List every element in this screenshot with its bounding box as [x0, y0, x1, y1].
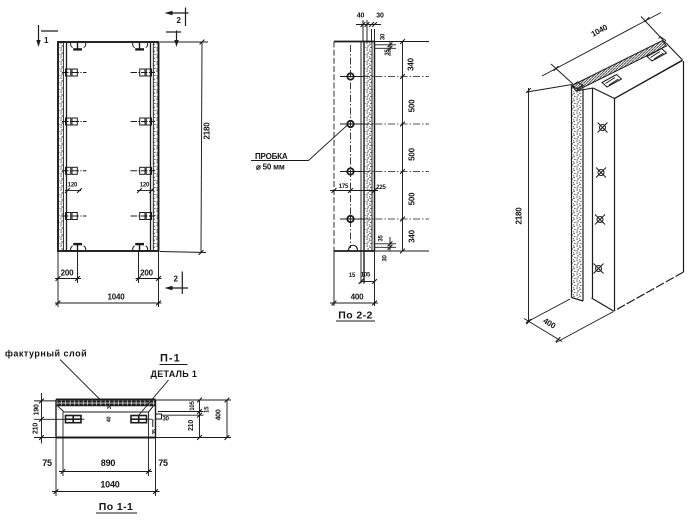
svg-text:210: 210 — [188, 420, 195, 431]
svg-text:400: 400 — [216, 409, 223, 420]
svg-text:200: 200 — [61, 269, 74, 278]
svg-text:210: 210 — [33, 423, 40, 434]
svg-text:400: 400 — [351, 293, 364, 302]
svg-text:ПРОБКА: ПРОБКА — [255, 152, 288, 161]
svg-text:⌀ 50 мм: ⌀ 50 мм — [256, 163, 285, 172]
svg-text:По 2-2: По 2-2 — [338, 310, 372, 322]
svg-text:35: 35 — [385, 49, 391, 56]
svg-text:15: 15 — [205, 406, 211, 413]
svg-text:500: 500 — [408, 99, 417, 112]
svg-text:120: 120 — [68, 183, 78, 189]
svg-text:1040: 1040 — [108, 293, 126, 302]
svg-text:15: 15 — [349, 273, 356, 279]
svg-text:190: 190 — [34, 404, 41, 415]
svg-text:30: 30 — [107, 404, 113, 410]
svg-text:40: 40 — [357, 13, 365, 20]
svg-text:120: 120 — [140, 183, 150, 189]
svg-text:200: 200 — [140, 269, 153, 278]
svg-text:500: 500 — [408, 147, 417, 160]
svg-text:340: 340 — [407, 57, 416, 70]
svg-text:75: 75 — [158, 458, 168, 468]
svg-text:225: 225 — [376, 185, 386, 191]
svg-text:500: 500 — [408, 192, 417, 205]
svg-text:По 1-1: По 1-1 — [99, 501, 133, 513]
svg-text:30: 30 — [376, 13, 384, 20]
svg-text:П-1: П-1 — [160, 353, 181, 365]
svg-text:175: 175 — [339, 184, 349, 190]
svg-text:30: 30 — [163, 417, 170, 423]
svg-text:105: 105 — [361, 273, 371, 279]
svg-text:30: 30 — [383, 255, 389, 262]
svg-text:30: 30 — [381, 33, 387, 40]
svg-text:2180: 2180 — [203, 122, 212, 140]
svg-text:105: 105 — [190, 400, 196, 410]
svg-text:340: 340 — [408, 229, 417, 242]
svg-text:75: 75 — [42, 458, 52, 468]
svg-text:40: 40 — [107, 417, 113, 423]
svg-text:35: 35 — [379, 235, 385, 242]
svg-text:фактурный слой: фактурный слой — [5, 349, 87, 359]
svg-text:2180: 2180 — [515, 207, 524, 225]
svg-text:35: 35 — [152, 429, 158, 435]
svg-text:890: 890 — [101, 458, 116, 468]
svg-text:1040: 1040 — [100, 480, 119, 490]
svg-text:ДЕТАЛЬ 1: ДЕТАЛЬ 1 — [151, 369, 198, 379]
